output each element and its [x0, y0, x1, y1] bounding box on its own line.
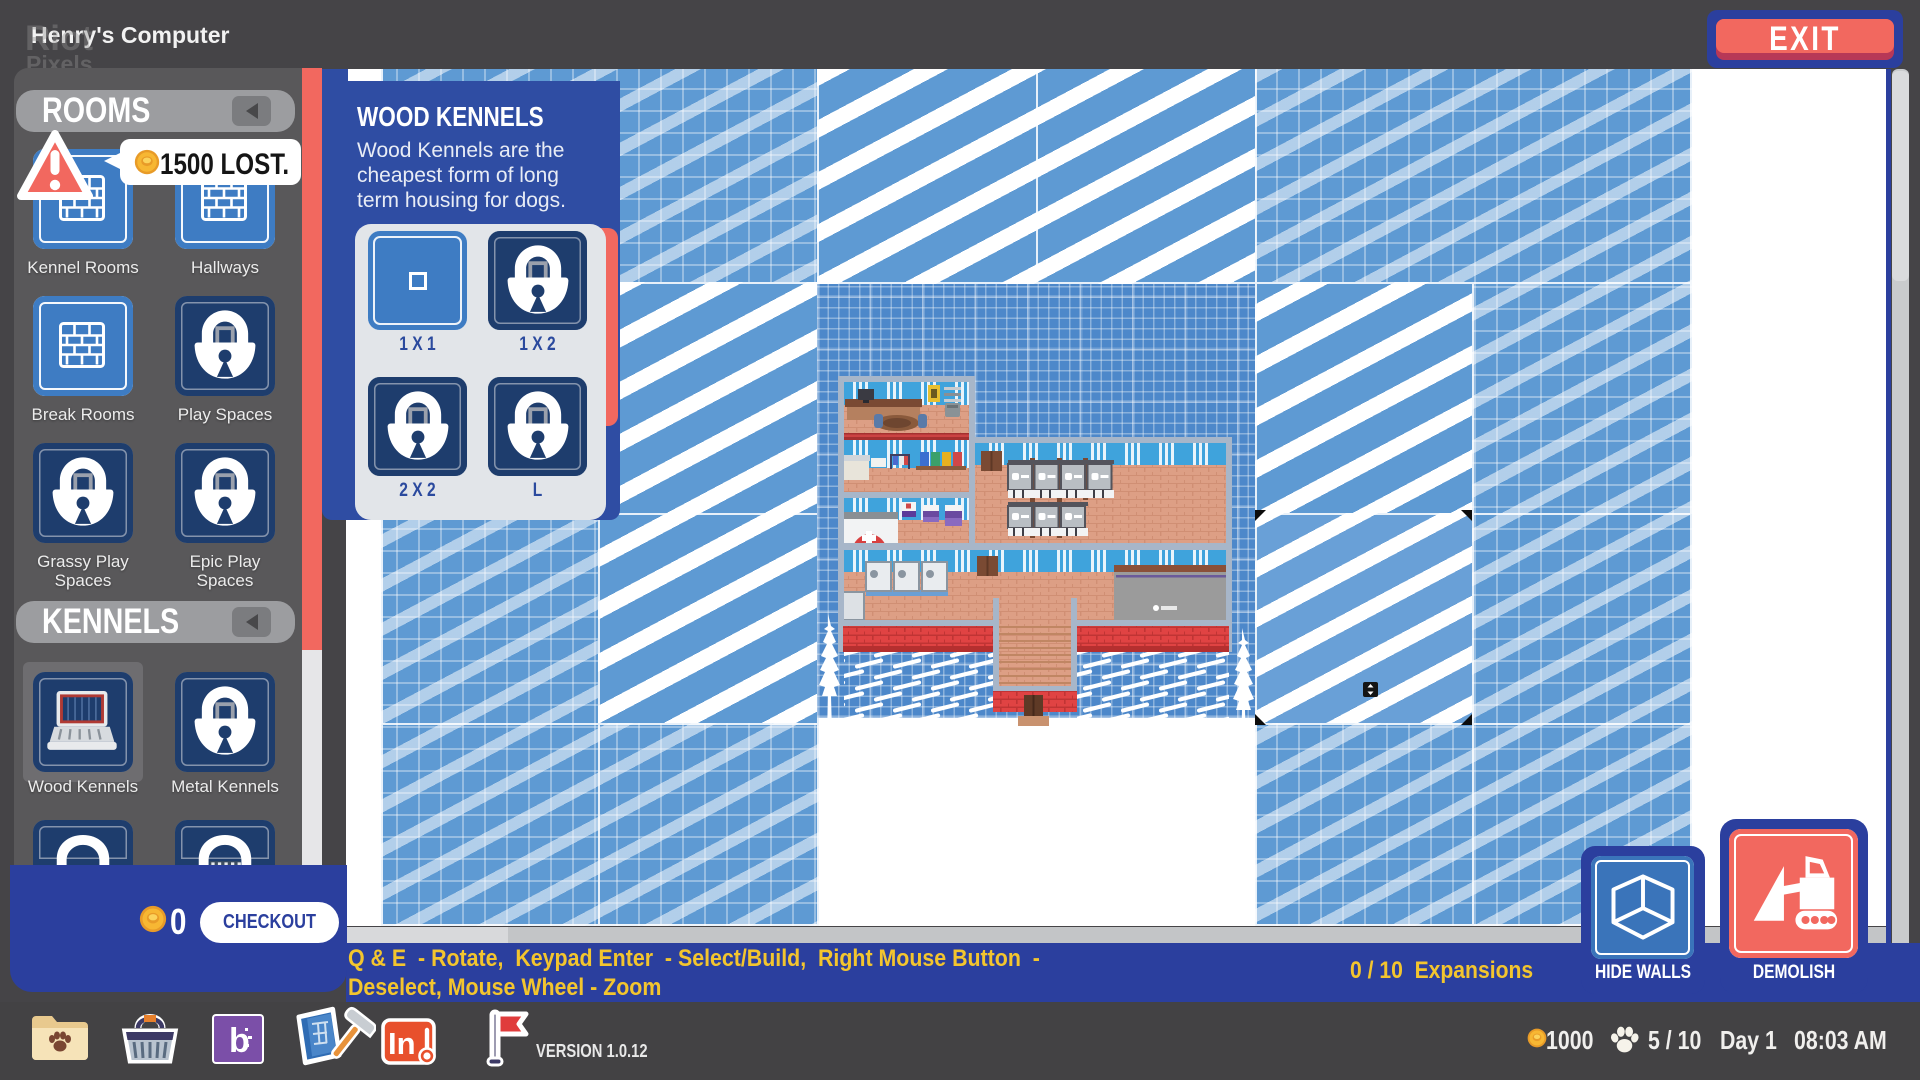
svg-text:b: b	[229, 1022, 250, 1060]
svg-text:In: In	[388, 1026, 416, 1061]
